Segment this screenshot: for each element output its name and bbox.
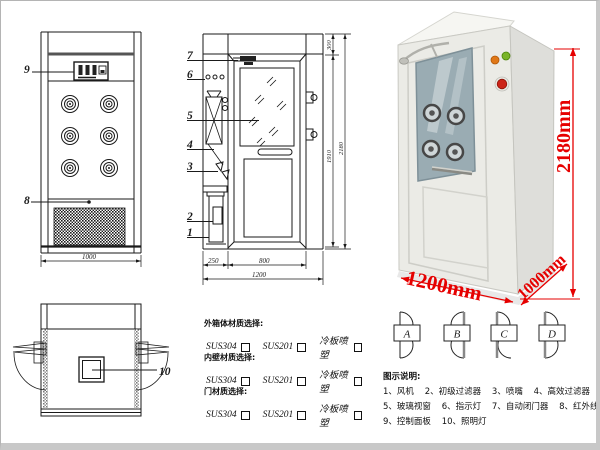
inner-coldplate-label: 冷板喷塑 <box>319 367 350 395</box>
door-handle-glyph <box>258 149 292 155</box>
side-view-callouts: 7 6 5 4 3 2 1 <box>186 50 194 239</box>
outer-material-label: 外箱体材质选择: <box>204 318 263 329</box>
door-config-d: D <box>539 312 565 358</box>
legend-line-1: 1、风机 2、初级过滤器 3、喷嘴 4、高效过滤器 <box>383 385 590 397</box>
inner-material-label: 内壁材质选择: <box>204 352 255 363</box>
legend-line-2: 5、玻璃视窗 6、指示灯 7、自动闭门器 8、红外线感应器 <box>383 400 600 412</box>
spec-sheet-page: 9 8 1000 <box>0 0 600 450</box>
door-config-b: B <box>444 312 470 358</box>
front-width-dimension: 1000 <box>41 253 141 267</box>
inner-sus201-label: SUS201 <box>263 376 294 386</box>
door-coldplate-checkbox[interactable] <box>354 411 362 420</box>
svg-text:1000: 1000 <box>82 253 97 261</box>
inner-sus304-checkbox[interactable] <box>241 377 250 386</box>
callout-9: 9 <box>24 64 30 76</box>
dim-250: 250 <box>208 257 219 265</box>
outer-sus304-checkbox[interactable] <box>241 343 250 352</box>
product-photo: 2180mm 1200mm 1000mm <box>397 12 580 306</box>
legend-line-3: 9、控制面板 10、照明灯 <box>383 415 487 427</box>
dim-1200: 1200 <box>252 271 267 279</box>
side-width-dimensions: 250 800 1200 <box>203 251 323 285</box>
door-config-d-label: D <box>547 329 556 341</box>
photo-height-label: 2180mm <box>553 99 575 173</box>
dim-2180: 2180 <box>338 141 345 155</box>
dim-800: 800 <box>259 257 270 265</box>
photo-glass-window <box>416 48 475 181</box>
air-grille-glyph <box>54 208 125 245</box>
front-view-drawing: 9 8 1000 <box>24 32 141 267</box>
door-material-options: SUS304 SUS201 冷板喷塑 <box>206 401 362 429</box>
callout-8: 8 <box>24 195 30 207</box>
door-config-a: A <box>394 312 420 358</box>
door-sus201-checkbox[interactable] <box>297 411 306 420</box>
door-config-diagrams: A B C D <box>394 312 565 358</box>
outer-sus304-label: SUS304 <box>206 342 237 352</box>
equipment-section <box>203 75 229 244</box>
inner-sus304-label: SUS304 <box>206 376 237 386</box>
door-swing-glyphs <box>13 343 169 390</box>
door-sus304-checkbox[interactable] <box>241 411 250 420</box>
outer-sus201-checkbox[interactable] <box>297 343 306 352</box>
inner-coldplate-checkbox[interactable] <box>354 377 362 386</box>
door-config-c-label: C <box>500 329 508 341</box>
outer-coldplate-label: 冷板喷塑 <box>319 333 350 361</box>
nozzle-glyphs <box>62 96 118 177</box>
control-panel-glyph <box>74 62 108 80</box>
door-sus201-label: SUS201 <box>263 410 294 420</box>
outer-coldplate-checkbox[interactable] <box>354 343 362 352</box>
glass-window-glyph <box>240 68 294 146</box>
outer-sus201-label: SUS201 <box>263 342 294 352</box>
callout-10: 10 <box>159 366 171 378</box>
door-config-c: C <box>491 312 517 358</box>
legend-title: 图示说明: <box>383 370 420 382</box>
door-sus304-label: SUS304 <box>206 410 237 420</box>
side-height-dimensions: 300 1910 2180 <box>325 34 351 249</box>
door-material-label: 门材质选择: <box>204 386 247 397</box>
inner-sus201-checkbox[interactable] <box>297 377 306 386</box>
door-config-a-label: A <box>403 329 411 341</box>
dim-1910: 1910 <box>326 149 333 163</box>
dim-300: 300 <box>326 40 333 52</box>
door-config-b-label: B <box>454 329 461 341</box>
side-view-drawing: 7 6 5 4 3 2 1 300 1910 2180 250 800 1 <box>186 34 351 285</box>
top-view-drawing: 10 <box>13 304 171 416</box>
door-coldplate-label: 冷板喷塑 <box>319 401 350 429</box>
